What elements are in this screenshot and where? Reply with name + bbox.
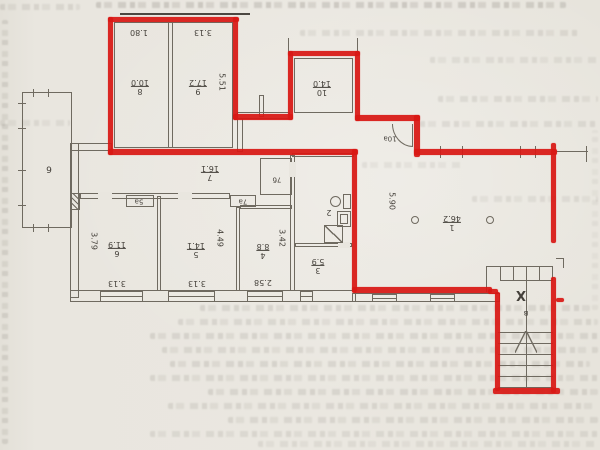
stair-landing-divider — [539, 266, 540, 281]
shower-tray — [324, 225, 343, 243]
red-outline-10a-top — [355, 115, 420, 121]
bleed-through-text-line — [438, 96, 598, 102]
stair-step — [498, 376, 553, 377]
room-area: 14.1 — [187, 240, 205, 248]
red-connector — [488, 289, 498, 294]
wall-stub — [237, 118, 243, 152]
dim-room9-top: 3.13 — [194, 28, 212, 36]
bleed-through-text-line — [96, 2, 566, 8]
room-number: 10 — [313, 87, 331, 96]
room-label-5: 5 14.1 — [187, 240, 205, 258]
bleed-through-text-line — [170, 361, 590, 367]
room-area: 11.9 — [108, 239, 126, 247]
bleed-through-text-line — [300, 30, 580, 36]
red-outline-room1-left — [352, 149, 357, 292]
dim-room4-bottom: 2.58 — [254, 278, 272, 286]
dim-room8-top: 1.80 — [130, 28, 148, 36]
room-number: 5 — [187, 249, 205, 258]
bleed-through-text-line — [168, 403, 598, 409]
room-area: 14.0 — [313, 78, 331, 86]
wall-tail — [556, 151, 588, 152]
room-label-3: 3 5.9 — [312, 256, 325, 274]
loggia-railing-tick — [33, 89, 34, 97]
red-outline-room10-left — [288, 51, 293, 120]
wall-room6-room5 — [157, 196, 161, 291]
room-number: 7 — [201, 172, 219, 181]
room4-top-wall — [240, 205, 292, 209]
outer-wall-left — [70, 143, 79, 298]
dim-room4-side: 3.42 — [278, 229, 287, 247]
window — [372, 294, 397, 302]
loggia-railing-tick — [48, 89, 49, 97]
red-outline-annexe-top — [108, 17, 239, 22]
red-outline-room10-right — [355, 51, 360, 121]
door-opening — [178, 192, 192, 200]
bleed-through-text-line — [430, 57, 598, 63]
bleed-through-margin-text — [592, 130, 598, 310]
room-area: 5.9 — [312, 256, 325, 264]
bleed-through-text-line — [178, 319, 598, 325]
stair-step — [498, 354, 553, 355]
loggia-railing-tick — [18, 205, 26, 206]
window — [100, 291, 143, 302]
bleed-through-text-line — [258, 441, 598, 447]
wall-tick — [288, 38, 289, 52]
red-outline-annexe-left — [108, 17, 113, 155]
column-mark — [411, 216, 419, 224]
bleed-through-text-line — [228, 417, 598, 423]
red-outline-room1-right-upper — [551, 150, 556, 243]
loggia-railing-tick — [18, 128, 26, 129]
window — [430, 294, 455, 302]
staircase-mark: X — [516, 287, 526, 301]
room-label-4: 4 8.8 — [257, 241, 270, 259]
room-number: 8 — [131, 86, 149, 95]
wall-hatch-section — [70, 193, 80, 210]
red-outline-room1-right-lower — [551, 277, 556, 393]
window — [300, 291, 313, 302]
closet-label-7a: 7а — [239, 197, 248, 204]
loggia-railing-tick — [18, 170, 26, 171]
room-area: 17.2 — [189, 77, 207, 85]
loggia-railing-tick — [18, 103, 26, 104]
red-outline-stair-left — [495, 292, 500, 391]
window — [168, 291, 215, 302]
pantry-label-7b: 7б — [273, 175, 282, 182]
room-label-10: 10 14.0 — [313, 78, 331, 96]
outer-wall-top-left — [70, 143, 112, 151]
stair-step — [498, 343, 553, 344]
room-number: 6 — [108, 248, 126, 257]
staircase-letter: в — [524, 309, 529, 317]
balcony-edge-line — [120, 13, 250, 15]
dim-room1-side: 5.90 — [388, 192, 397, 210]
red-outline-stair-bottom — [493, 388, 560, 394]
red-outline-room1-top — [414, 149, 557, 155]
red-outline-room1-bottom — [352, 287, 492, 293]
stair-direction-arrow-lines — [515, 331, 537, 353]
door-leaf — [412, 124, 413, 147]
room-label-6: 6 11.9 — [108, 239, 126, 257]
loggia-label: 6 — [46, 163, 52, 172]
stair-right-ledge — [563, 258, 564, 268]
dim-room9-side: 5.51 — [218, 73, 227, 91]
room-number: 4 — [257, 250, 270, 259]
stair-step — [498, 332, 553, 333]
dim-room6-side: 3.79 — [90, 232, 99, 250]
room-label-10a: 10а — [383, 134, 396, 141]
room-label-7: 7 16.1 — [201, 163, 219, 181]
room-label-2: 2 — [326, 208, 331, 216]
loggia-outline — [22, 92, 72, 228]
red-outline-room10-top — [288, 51, 360, 56]
dim-room6-bottom: 3.13 — [108, 279, 126, 287]
red-outline-annexe-right — [233, 17, 238, 120]
room-area: 16.1 — [201, 163, 219, 171]
red-stub-right — [556, 298, 564, 302]
door-opening — [289, 162, 296, 177]
sink-basin — [340, 214, 348, 224]
bleed-through-margin-text — [2, 20, 8, 444]
red-outline-jog-right — [233, 114, 293, 120]
bleed-through-text-line — [0, 4, 80, 10]
wall-room8-room9 — [168, 22, 173, 148]
wall-tail — [586, 146, 587, 162]
stair-step — [498, 365, 553, 366]
room-area: 46.2 — [443, 213, 461, 221]
room-label-9: 9 17.2 — [189, 77, 207, 95]
dim-room5-side: 4.49 — [216, 229, 225, 247]
window — [247, 291, 283, 302]
wall-tick — [357, 38, 358, 52]
loggia-railing-tick — [48, 224, 49, 232]
closet-label-5a: 5а — [135, 197, 144, 204]
dim-room5-bottom: 3.13 — [188, 279, 206, 287]
door-opening — [98, 192, 112, 200]
stair-landing-divider — [513, 266, 514, 281]
bleed-through-text-line — [420, 121, 598, 127]
red-outline-main-top-wall — [108, 149, 358, 155]
room-number: 1 — [443, 222, 461, 231]
room-number: 9 — [189, 86, 207, 95]
bleed-through-text-line — [150, 431, 598, 437]
bleed-through-text-line — [200, 305, 590, 311]
toilet-tank — [343, 194, 351, 209]
room-area: 8.8 — [257, 241, 270, 249]
room-area: 10.0 — [131, 77, 149, 85]
wall-room5-room4 — [236, 207, 240, 291]
room-label-1: 1 46.2 — [443, 213, 461, 231]
column-mark — [486, 216, 494, 224]
bleed-through-text-line — [362, 162, 462, 168]
loggia-railing-tick — [33, 224, 34, 232]
room-label-8: 8 10.0 — [131, 77, 149, 95]
room-number: 3 — [312, 265, 325, 274]
bleed-through-text-line — [472, 196, 598, 202]
toilet-bowl — [330, 196, 341, 207]
scanned-floor-plan-page: 8 10.0 9 17.2 10 14.0 7 16.1 6 11.9 5 14… — [0, 0, 600, 450]
stair-entry-wall — [486, 266, 500, 267]
